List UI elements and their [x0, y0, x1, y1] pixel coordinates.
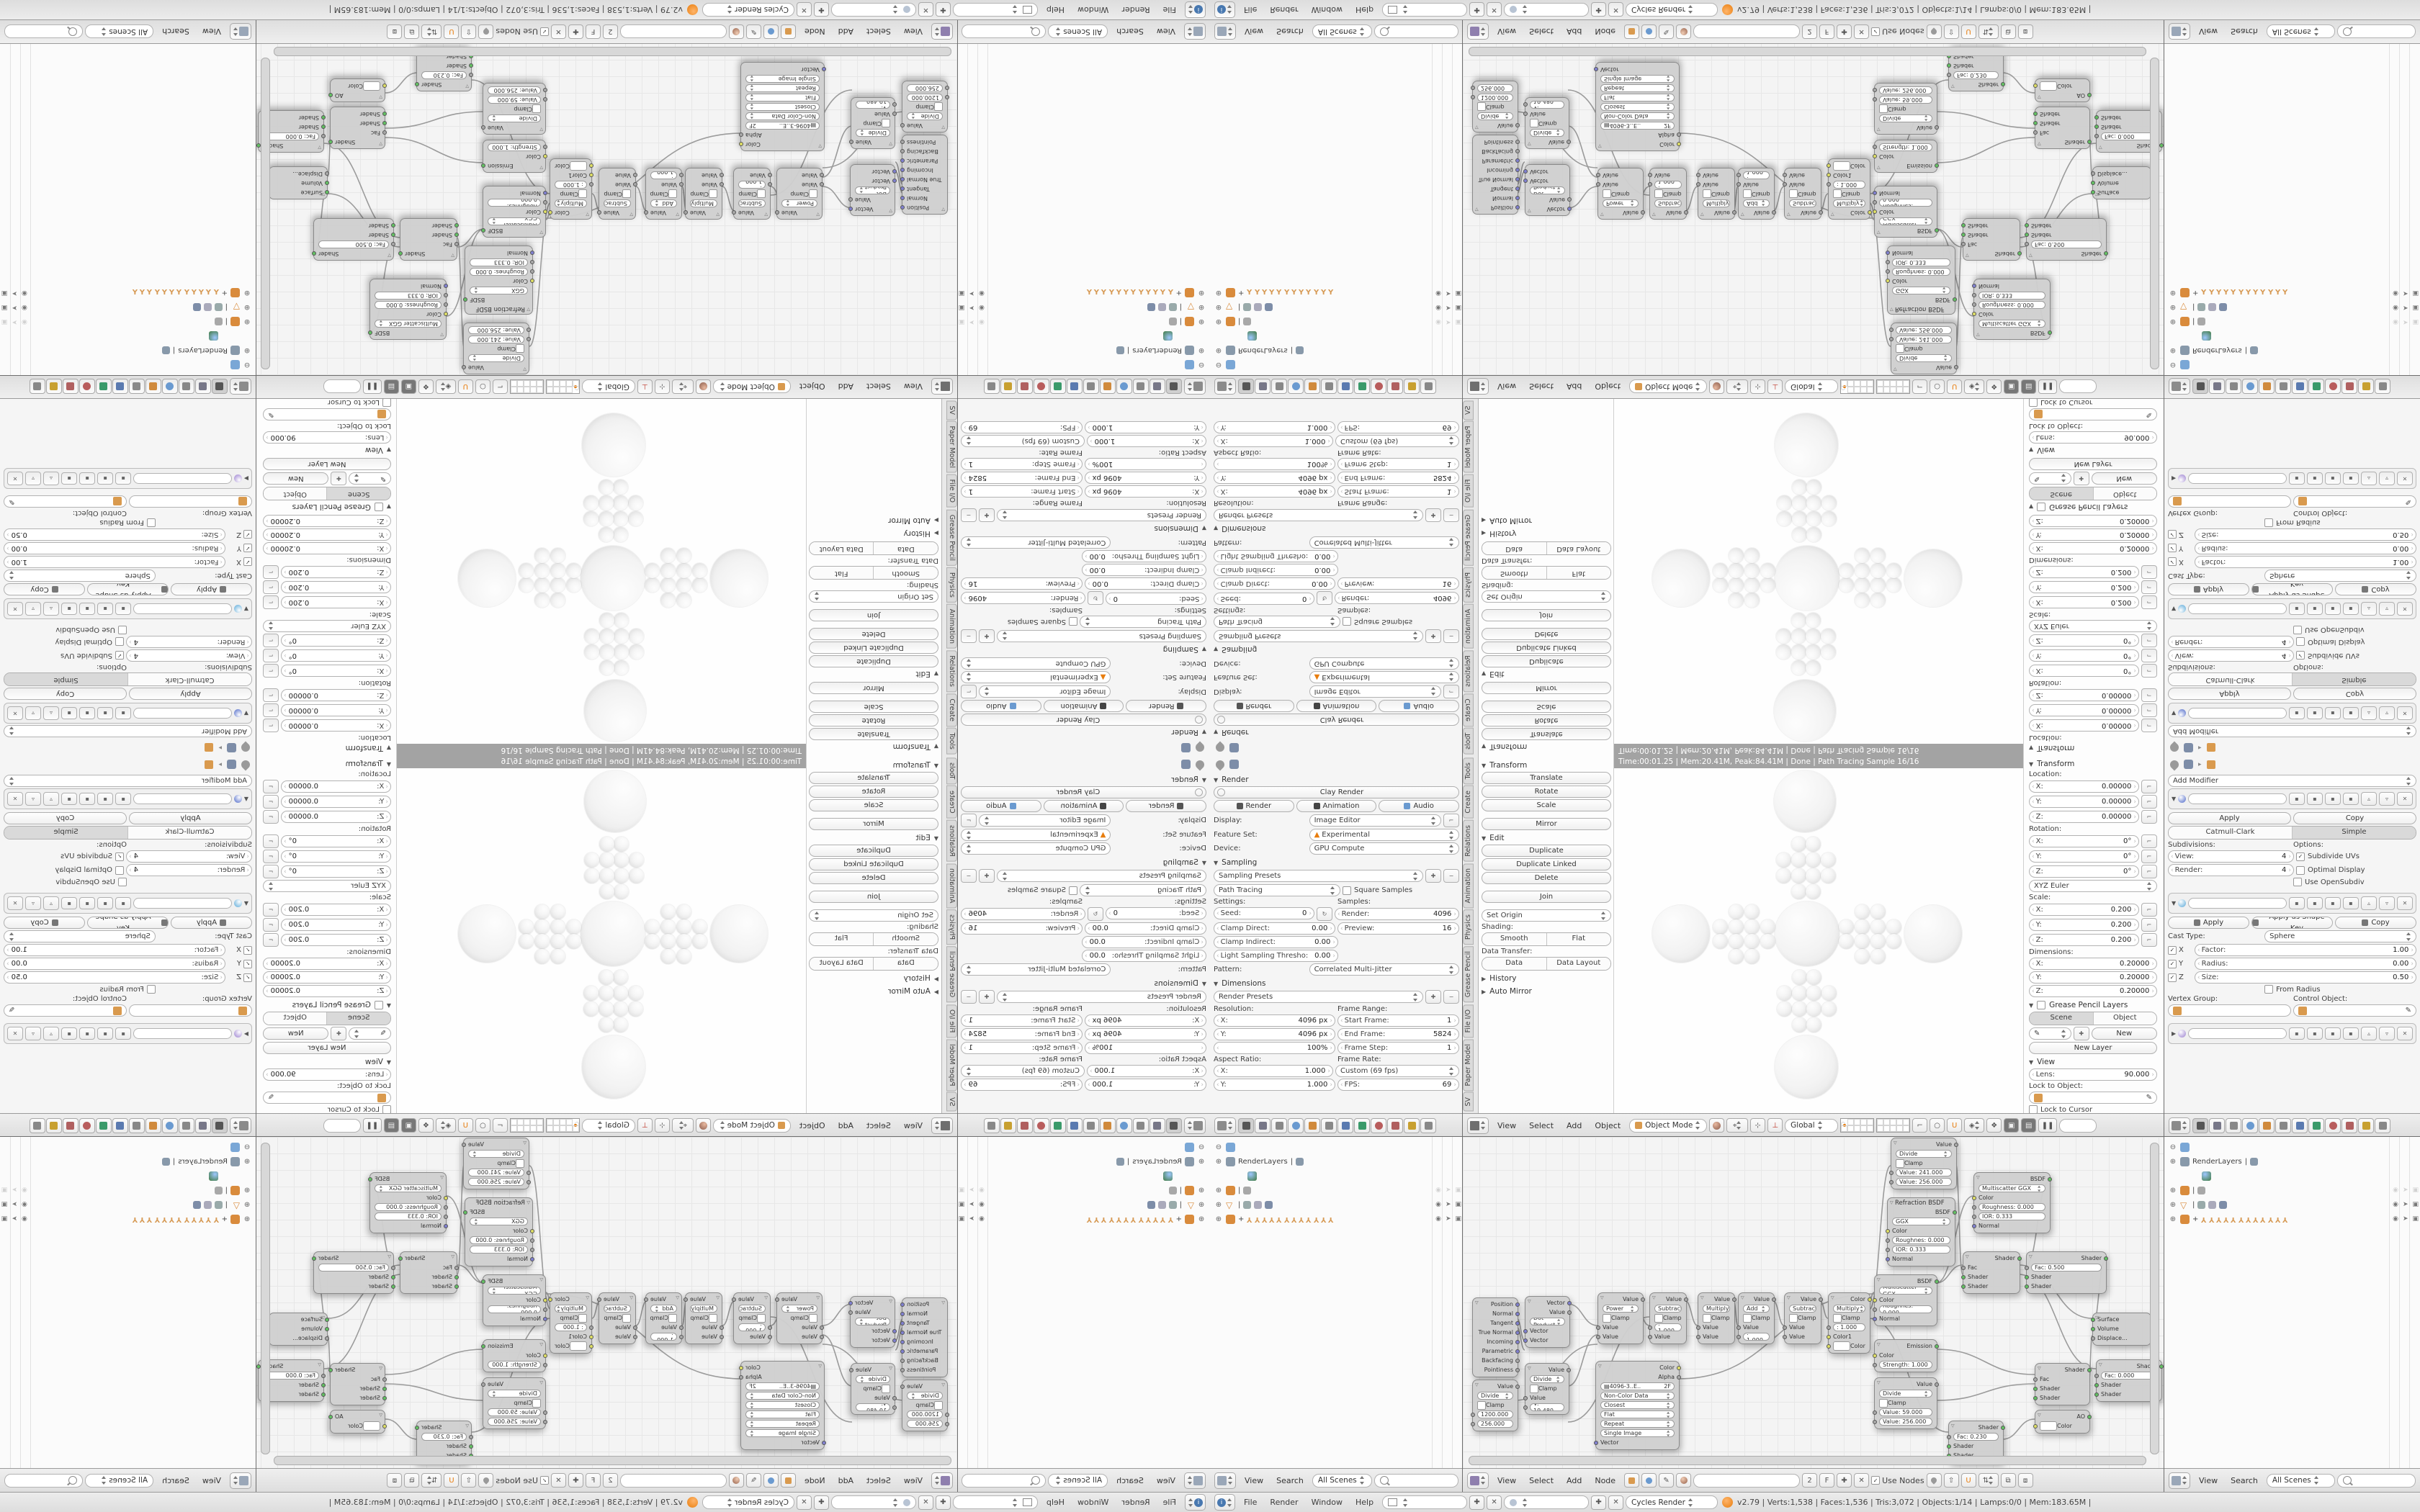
socket-in[interactable]	[543, 155, 547, 159]
snap-magnet-icon[interactable]: U	[1961, 1473, 1976, 1488]
remove-preset-button[interactable]: −	[1443, 508, 1459, 522]
button[interactable]: Duplicate	[809, 655, 938, 667]
socket-in[interactable]	[543, 1354, 547, 1358]
modifier-name-field[interactable]	[133, 793, 232, 804]
segmented-control[interactable]: Catmull-ClarkSimple	[4, 672, 252, 686]
socket-out[interactable]	[328, 1368, 333, 1372]
pin-icon[interactable]	[1214, 758, 1227, 770]
lock-button[interactable]: ⌐	[961, 685, 977, 698]
socket-out[interactable]	[1677, 133, 1681, 138]
segmented-control[interactable]: DataData Layout	[1482, 957, 1611, 971]
socket-in[interactable]	[325, 1318, 329, 1322]
eye-icon[interactable]: ◉	[1435, 304, 1441, 311]
node-dropdown[interactable]: Subtract	[738, 1305, 766, 1313]
socket-out[interactable]	[1935, 164, 1939, 168]
node-dropdown[interactable]: Divide	[488, 114, 541, 122]
node-dropdown[interactable]: Non-Color Data	[1600, 1392, 1675, 1400]
editor-type-button[interactable]	[1467, 1117, 1489, 1134]
shader-node[interactable]: ▽ColorMultiplyClamp: 1.000Color1Color	[550, 1292, 592, 1354]
axis-toggle[interactable]: ✓Y	[228, 960, 252, 968]
node-checkbox[interactable]	[882, 1385, 890, 1393]
button[interactable]: Join	[1482, 609, 1611, 621]
socket-in[interactable]	[1783, 183, 1787, 187]
number-field[interactable]: ‹Light Sampling Thresho:0.00›	[1214, 950, 1338, 962]
panel-header[interactable]: ▼Render	[1214, 773, 1459, 786]
segment-option[interactable]: Flat	[810, 567, 874, 579]
panel-header-collapsed[interactable]: ▶History	[1482, 972, 1611, 985]
camera-icon[interactable]: ▣	[959, 318, 965, 325]
editor-type-button[interactable]	[1467, 379, 1489, 395]
socket-out[interactable]	[481, 126, 485, 130]
node-checkbox[interactable]	[1703, 190, 1711, 199]
eyedropper-icon[interactable]: ✎	[2406, 496, 2411, 508]
editor-type-button[interactable]	[2169, 1117, 2190, 1134]
button[interactable]: Duplicate Linked	[809, 642, 938, 654]
socket-in[interactable]	[679, 174, 684, 178]
tab-particles-icon[interactable]	[46, 1118, 62, 1133]
editor-type-button[interactable]	[931, 379, 953, 395]
socket-in[interactable]	[391, 1266, 395, 1270]
node-number-field[interactable]: : 1.000	[1743, 1333, 1770, 1341]
socket-in[interactable]	[2094, 1383, 2099, 1387]
panel-header[interactable]: ▼View	[2029, 1056, 2157, 1068]
socket-in[interactable]	[1972, 294, 1976, 298]
shader-node[interactable]: ▽ValueDivideClamp1200.000256.000	[902, 81, 948, 132]
outliner-row[interactable]: ⊕|◉➤▣	[2169, 315, 2383, 329]
image-datablock-field[interactable]: ▤4096-3..E..2F	[1600, 122, 1675, 130]
shader-node[interactable]: ▽ValueDivideClampValue: 241.000Value: 25…	[1891, 1138, 1957, 1189]
tab-constraints-icon[interactable]	[1321, 1118, 1337, 1133]
tab-material-icon[interactable]	[1034, 1118, 1049, 1133]
socket-in[interactable]	[1972, 303, 1976, 307]
scene-field[interactable]	[1504, 3, 1589, 17]
number-field[interactable]: ‹Render:4096›	[1335, 592, 1459, 604]
toolshelf-tab-grease-pencil[interactable]: Grease Pencil	[946, 510, 957, 566]
editor-type-button[interactable]	[1184, 1117, 1206, 1134]
socket-in[interactable]	[1596, 1335, 1600, 1339]
shader-node[interactable]: ▽ValueDivideClampValue: 59.000Value: 256…	[1874, 1377, 1937, 1429]
mod-toggle-render-icon[interactable]: ▪	[115, 603, 131, 615]
display-mode-select[interactable]: All Scenes	[2267, 1474, 2335, 1488]
node-number-field[interactable]: Value: 59.000	[488, 96, 541, 104]
axis-icon[interactable]: ⊥	[637, 379, 653, 394]
panel-header[interactable]: ▼Grease Pencil Layers	[2029, 500, 2157, 513]
modifier-header[interactable]: ▶▪▪▪▪▵▿✕	[2168, 1023, 2416, 1044]
tab-render-icon[interactable]	[1166, 1118, 1182, 1133]
camera-icon[interactable]: ▣	[1455, 1215, 1461, 1223]
socket-in[interactable]	[768, 1326, 772, 1330]
socket-out[interactable]	[2048, 331, 2052, 336]
number-field[interactable]: ‹Size:0.50›	[4, 528, 225, 541]
checkbox-box[interactable]	[1069, 618, 1077, 626]
dropdown[interactable]: GPU Compute	[961, 842, 1111, 855]
node-number-field[interactable]: Roughness: 0.000	[375, 1203, 442, 1211]
axis-lock-button[interactable]: ⌐	[263, 850, 279, 863]
mod-toggle-cage-icon[interactable]: ▪	[2343, 793, 2359, 805]
tab-physics-icon[interactable]	[30, 1118, 45, 1133]
dropdown[interactable]: Add Modifier	[2168, 775, 2416, 787]
menu-select[interactable]: Select	[1523, 382, 1560, 392]
object-field[interactable]: ✎	[2293, 495, 2416, 508]
socket-in[interactable]	[469, 73, 473, 78]
editor-type-button[interactable]	[1184, 379, 1206, 395]
toolshelf-tab-paper-model[interactable]: Paper Model	[946, 1039, 957, 1091]
object-field[interactable]: ✎	[4, 1004, 127, 1017]
tab-scene-icon[interactable]	[1133, 1118, 1149, 1133]
outliner-row[interactable]: ⊕▽|◉➤▣	[37, 300, 251, 315]
mod-toggle-render-icon[interactable]: ▪	[115, 707, 131, 719]
restriction-icons[interactable]: ◉➤▣	[1435, 304, 1461, 311]
segmented-control[interactable]: Catmull-ClarkSimple	[4, 826, 252, 840]
socket-out[interactable]	[2048, 1177, 2052, 1182]
socket-in[interactable]	[543, 210, 547, 215]
socket-in[interactable]	[543, 1420, 547, 1424]
render-engine-select[interactable]: Cycles Render	[1626, 1495, 1718, 1509]
toolshelf-tab-paper-model[interactable]: Paper Model	[946, 421, 957, 473]
node-dropdown[interactable]: Subtract	[738, 199, 766, 207]
remove-preset-button[interactable]: −	[1443, 629, 1459, 643]
display-mode-select[interactable]: All Scenes	[1048, 1474, 1108, 1488]
color-swatch[interactable]	[1833, 1341, 1850, 1351]
button[interactable]: Rotate	[1482, 714, 1611, 726]
shader-node[interactable]: ▽ValueAddClampValue: 1.000	[1738, 1292, 1775, 1344]
number-field[interactable]: ‹Z:0.20000›	[263, 985, 391, 997]
dropdown[interactable]: XYZ Euler	[2029, 880, 2157, 892]
expand-icon[interactable]: ⊕	[243, 289, 251, 297]
outliner-row[interactable]: ⊖	[2169, 1140, 2383, 1154]
fake-user-button[interactable]: F	[1819, 24, 1834, 39]
pivot-icon[interactable]: ⊹	[1750, 1118, 1765, 1133]
number-field[interactable]: ‹Frame Step:1›	[961, 458, 1083, 470]
socket-in[interactable]	[2091, 1327, 2095, 1331]
panel-header[interactable]: ▼View	[2029, 444, 2157, 456]
node-dropdown[interactable]: Dot Product	[1530, 1318, 1565, 1326]
restriction-icons[interactable]: ◉➤▣	[2393, 318, 2419, 325]
use-nodes-checkbox[interactable]: ✓	[1871, 27, 1880, 36]
dropdown[interactable]: Sampling Presets	[1214, 630, 1423, 642]
segmented-control[interactable]: SmoothFlat	[809, 566, 938, 580]
scene-field[interactable]	[831, 3, 916, 17]
number-field[interactable]: ‹Y:1.000›	[1214, 1079, 1335, 1091]
delete-scene-button[interactable]: ✕	[1608, 1495, 1623, 1510]
socket-in[interactable]	[589, 183, 593, 187]
toolshelf-tab-paper-model[interactable]: Paper Model	[1463, 421, 1474, 473]
number-field[interactable]: ‹Light Sampling Thresho:0.00›	[1082, 950, 1206, 962]
eye-icon[interactable]: ◉	[979, 1215, 985, 1223]
outliner-row[interactable]	[995, 329, 1206, 343]
number-field[interactable]: ‹Y:1.000›	[1085, 421, 1206, 433]
socket-in[interactable]	[1783, 1335, 1787, 1339]
dropdown[interactable]: Correlated Multi-Jitter	[961, 963, 1111, 976]
mod-toggle-render-icon[interactable]: ▪	[115, 793, 131, 805]
mod-toggle-render-icon[interactable]: ▪	[2289, 472, 2305, 485]
search-input[interactable]	[4, 25, 83, 39]
menu-render[interactable]: Render	[1115, 5, 1156, 14]
shader-type-world-icon[interactable]	[1641, 24, 1657, 39]
axis-lock-button[interactable]: ⌐	[263, 719, 279, 732]
eye-icon[interactable]: ◉	[979, 1201, 985, 1208]
tab-constraints-icon[interactable]	[2275, 1118, 2291, 1133]
tab-material-icon[interactable]	[79, 379, 95, 395]
cursor-icon[interactable]: ➤	[12, 1187, 18, 1194]
button[interactable]: Rotate	[1482, 786, 1611, 798]
mod-toggle-editmode-icon[interactable]: ▪	[2325, 603, 2341, 615]
mode-select[interactable]: Object Mode	[1629, 380, 1707, 394]
node-dropdown[interactable]: Multiscatter GGX	[488, 217, 541, 225]
node-checkbox[interactable]	[809, 190, 817, 199]
socket-in[interactable]	[1696, 183, 1700, 187]
panel-header-collapsed[interactable]: ▶History	[809, 527, 938, 540]
button[interactable]: Translate	[1482, 728, 1611, 740]
modifier-header[interactable]: ▼▪▪▪▪▵▿✕	[4, 598, 252, 619]
number-field[interactable]: ‹X:1.000›	[1214, 435, 1333, 447]
node-dropdown[interactable]: Non-Color Data	[1600, 112, 1675, 120]
segment-option[interactable]: Object	[264, 487, 328, 500]
add-scene-button[interactable]: ✚	[1591, 3, 1606, 17]
socket-in[interactable]	[530, 270, 534, 274]
restriction-icons[interactable]: ◉➤▣	[1435, 318, 1461, 325]
new-material-button[interactable]: ✚	[568, 1473, 583, 1488]
move-down-button[interactable]: ▿	[2379, 1027, 2395, 1040]
socket-in[interactable]	[543, 1298, 547, 1302]
object-field[interactable]: ✎	[4, 495, 127, 508]
axis-lock-button[interactable]: ⌐	[263, 580, 279, 594]
checkbox-box[interactable]	[118, 626, 127, 634]
menu-help[interactable]: Help	[1349, 1498, 1380, 1507]
socket-in[interactable]	[1886, 270, 1890, 274]
node-number-field[interactable]: : 1.000	[1833, 1323, 1865, 1331]
seed-refresh-button[interactable]: ↻	[1317, 591, 1332, 605]
menu-select[interactable]: Select	[1523, 27, 1560, 37]
expand-icon[interactable]: ⊕	[1214, 1158, 1223, 1166]
number-field[interactable]: ‹Y:0.200›	[281, 919, 391, 931]
socket-in[interactable]	[1972, 1224, 1976, 1228]
tab-modifiers-icon[interactable]	[1337, 379, 1353, 395]
node-dropdown[interactable]: Multiply	[1833, 199, 1865, 207]
dropdown[interactable]: Path Tracing	[1214, 884, 1340, 896]
delete-scene-button[interactable]: ✕	[1608, 3, 1623, 17]
screen-layout-field[interactable]	[953, 1495, 1038, 1509]
socket-in[interactable]	[589, 164, 593, 168]
axis-lock-button[interactable]: ⌐	[263, 933, 279, 947]
tab-texture-icon[interactable]	[1387, 379, 1403, 395]
tab-modifiers-icon[interactable]	[1067, 1118, 1083, 1133]
checkbox[interactable]: Optimal Display	[4, 638, 124, 647]
menu-file[interactable]: File	[1157, 5, 1183, 14]
render-ob-icon[interactable]: ❖	[418, 1118, 434, 1133]
outliner-row[interactable]: ⊕+YYYYYYYYYYYY◉➤▣	[995, 286, 1206, 300]
shader-node[interactable]: ▽ColorAlpha▤4096-3..E..2FNon-Color DataC…	[1595, 1361, 1680, 1450]
material-name-field[interactable]	[620, 1474, 727, 1488]
menu-view[interactable]: View	[1150, 27, 1182, 37]
orientation-select[interactable]: Global	[582, 380, 635, 394]
button[interactable]: Copy	[2335, 917, 2416, 929]
users-count[interactable]: 2	[603, 24, 618, 39]
restriction-icons[interactable]: ◉➤▣	[959, 1201, 985, 1208]
socket-out[interactable]	[644, 1297, 648, 1302]
socket-out[interactable]	[2001, 83, 2005, 87]
shader-node[interactable]: ▽PositionNormalTangentTrue NormalIncomin…	[1472, 135, 1518, 215]
node-number-field[interactable]: Strength: 1.000	[1879, 143, 1932, 151]
tab-constraints-icon[interactable]	[129, 379, 145, 395]
dropdown[interactable]: Custom (69 fps)	[1335, 1065, 1459, 1077]
axis-lock-button[interactable]: ⌐	[263, 865, 279, 878]
panel-header[interactable]: ▼Transform	[2029, 742, 2157, 755]
editor-type-button[interactable]: i	[1185, 1494, 1206, 1511]
dropdown[interactable]: Set Origin	[809, 909, 938, 922]
dropdown[interactable]: Image Editor	[1309, 814, 1441, 827]
number-field[interactable]: ‹Z:0.200›	[2029, 934, 2139, 946]
expand-icon[interactable]: ⊕	[2169, 347, 2177, 355]
socket-out[interactable]	[848, 1310, 853, 1315]
socket-in[interactable]	[2033, 1377, 2038, 1382]
parent-node-tree-icon[interactable]: ⇧	[1944, 24, 1959, 39]
collapse-icon[interactable]: ▼	[2172, 796, 2176, 802]
panel-header[interactable]: ▼Transform	[809, 759, 938, 772]
socket-in[interactable]	[1827, 1335, 1831, 1339]
shader-type-linestyle-icon[interactable]: ✎	[1659, 1473, 1674, 1488]
add-scene-button[interactable]: ✚	[814, 3, 829, 17]
viewport-shading-icon[interactable]	[696, 379, 711, 394]
v-scrollbar[interactable]	[261, 58, 270, 369]
socket-in[interactable]	[1961, 224, 1966, 228]
collapse-icon[interactable]: ▶	[244, 1030, 248, 1037]
tab-object-icon[interactable]	[1100, 1118, 1116, 1133]
mod-toggle-eye-icon[interactable]: ▪	[2307, 1027, 2323, 1040]
number-field[interactable]: ‹End Frame:5824›	[961, 1028, 1083, 1040]
material-preview-icon[interactable]	[729, 1473, 744, 1488]
view3d-menus[interactable]: ViewSelectAddObject	[1491, 1121, 1627, 1130]
number-field[interactable]: ‹Z:0.20000›	[2029, 985, 2157, 997]
mod-toggle-eye-icon[interactable]: ▪	[97, 1027, 113, 1040]
node-editor[interactable]: ▽PositionNormalTangentTrue NormalIncomin…	[1463, 20, 2164, 375]
mod-toggle-editmode-icon[interactable]: ▪	[2325, 472, 2341, 485]
clay-render-button[interactable]: Clay Render	[1214, 714, 1459, 726]
number-field[interactable]: ‹100%›	[1085, 1042, 1206, 1054]
socket-in[interactable]	[391, 1284, 395, 1289]
move-up-button[interactable]: ▵	[2361, 896, 2377, 910]
cursor-icon[interactable]: ➤	[969, 1187, 975, 1194]
color-swatch[interactable]	[570, 1341, 587, 1351]
menu-help[interactable]: Help	[1040, 5, 1071, 14]
v-scrollbar[interactable]	[2150, 1143, 2159, 1454]
outliner-row[interactable]	[37, 329, 251, 343]
mod-toggle-eye-icon[interactable]: ▪	[97, 707, 113, 719]
node-dropdown[interactable]: Dot Product	[855, 186, 890, 194]
tab-scene-icon[interactable]	[2226, 379, 2241, 395]
socket-in[interactable]	[820, 1335, 824, 1339]
socket-in[interactable]	[1889, 1171, 1894, 1175]
socket-in[interactable]	[325, 191, 329, 195]
menu-file[interactable]: File	[1237, 5, 1263, 14]
render-camera-icon[interactable]: ▣	[2004, 379, 2019, 394]
button[interactable]: Copy	[4, 917, 85, 929]
node-number-field[interactable]: Roughnes: 0.000	[1892, 268, 1950, 276]
button[interactable]: Copy	[2335, 583, 2416, 595]
segment-option[interactable]: Smooth	[874, 933, 938, 945]
socket-out[interactable]	[312, 252, 316, 256]
node-dropdown[interactable]: GGX	[1892, 1218, 1950, 1225]
modifier-header[interactable]: ▼▪▪▪▪▵▿✕	[2168, 703, 2416, 724]
socket-out[interactable]	[900, 187, 905, 192]
expand-icon[interactable]: ⊕	[2169, 289, 2177, 297]
toolshelf-tab-grease-pencil[interactable]: Grease Pencil	[1463, 510, 1474, 566]
layers-grid-1[interactable]	[1840, 1118, 1874, 1133]
node-dropdown[interactable]: Repeat	[1600, 84, 1675, 92]
expand-icon[interactable]: ⊕	[1197, 1201, 1206, 1209]
node-checkbox[interactable]	[1530, 120, 1538, 128]
socket-out[interactable]	[1515, 140, 1520, 145]
node-dropdown[interactable]: Repeat	[745, 1420, 820, 1428]
socket-in[interactable]	[1961, 243, 1966, 247]
pin-icon[interactable]	[1927, 24, 1942, 39]
v-scrollbar[interactable]	[261, 1143, 270, 1454]
mod-toggle-cage-icon[interactable]: ▪	[61, 793, 77, 805]
number-field[interactable]: ‹FPS:69›	[961, 1079, 1083, 1091]
mod-toggle-editmode-icon[interactable]: ▪	[79, 1027, 95, 1040]
expand-icon[interactable]: ⊕	[2169, 1158, 2177, 1166]
shader-node[interactable]: ▽ValueDivideClamp1200.000256.000	[1472, 1380, 1518, 1431]
tab-object-icon[interactable]	[1304, 1118, 1320, 1133]
segment-option[interactable]: Scene	[328, 487, 391, 500]
shader-node[interactable]: ▽EmissionColorStrength: 1.000	[1874, 1339, 1937, 1372]
image-datablock-field[interactable]: ▤4096-3..E..2F	[745, 1382, 820, 1390]
segment-option[interactable]: Object	[2093, 487, 2157, 500]
add-scene-button[interactable]: ✚	[1591, 1495, 1606, 1510]
dropdown[interactable]: ▲Experimental	[1309, 829, 1459, 841]
toolshelf-tab-relations[interactable]: Relations	[946, 650, 957, 692]
menu-search[interactable]: Search	[1270, 1476, 1310, 1485]
socket-in[interactable]	[530, 251, 534, 256]
segment-option[interactable]: Object	[264, 1012, 328, 1025]
panel-checkbox[interactable]	[2037, 1001, 2045, 1009]
proportional-edit-icon[interactable]: ○	[1930, 379, 1945, 394]
socket-in[interactable]	[1523, 103, 1528, 107]
toolshelf-tab-strip[interactable]: ToolsCreateRelationsAnimationPhysicsGrea…	[1463, 756, 1479, 1113]
node-dropdown[interactable]: Add	[1743, 199, 1770, 207]
socket-in[interactable]	[321, 135, 326, 139]
header-extra-field[interactable]	[323, 380, 361, 394]
socket-in[interactable]	[633, 183, 637, 187]
shader-type-world-icon[interactable]	[763, 1473, 779, 1488]
render-ob-icon[interactable]: ❖	[1986, 379, 2002, 394]
socket-in[interactable]	[454, 233, 459, 238]
cursor-icon[interactable]: ➤	[2403, 1215, 2408, 1223]
socket-out[interactable]	[1954, 366, 1958, 370]
delete-modifier-button[interactable]: ✕	[2397, 896, 2413, 910]
viewport[interactable]: Time:00:01.25 | Mem:20.41M, Peak:84.41M …	[396, 756, 807, 1113]
editor-type-button[interactable]	[931, 24, 953, 40]
tab-render-layers-icon[interactable]	[2209, 1118, 2225, 1133]
cursor-icon[interactable]: ➤	[1446, 1187, 1451, 1194]
shader-node[interactable]: ▽ValueDivideClampValue: 59.000Value: 256…	[1874, 83, 1937, 135]
socket-in[interactable]	[391, 224, 395, 228]
button[interactable]: Apply as Shape Key	[2251, 583, 2333, 595]
socket-in[interactable]	[945, 1413, 949, 1417]
add-preset-button[interactable]: ✚	[1425, 869, 1441, 883]
eye-icon[interactable]: ◉	[1435, 289, 1441, 297]
shader-node[interactable]: ▽ValueDivideClampValue: 59.000Value: 256…	[483, 1377, 546, 1429]
socket-in[interactable]	[391, 1275, 395, 1279]
shader-node[interactable]: ▽VectorValueDot ProductVectorVector	[850, 164, 895, 216]
node-dropdown[interactable]: Divide	[1879, 114, 1932, 122]
socket-in[interactable]	[469, 1444, 473, 1449]
panel-header[interactable]: ▼Dimensions	[1214, 977, 1459, 990]
outliner-row[interactable]: ⊕|◉➤▣	[37, 315, 251, 329]
number-field[interactable]: ‹End Frame:5824›	[1337, 1028, 1459, 1040]
socket-out[interactable]	[1567, 1310, 1572, 1315]
toolshelf-tab-sv[interactable]: SV	[1463, 400, 1474, 420]
